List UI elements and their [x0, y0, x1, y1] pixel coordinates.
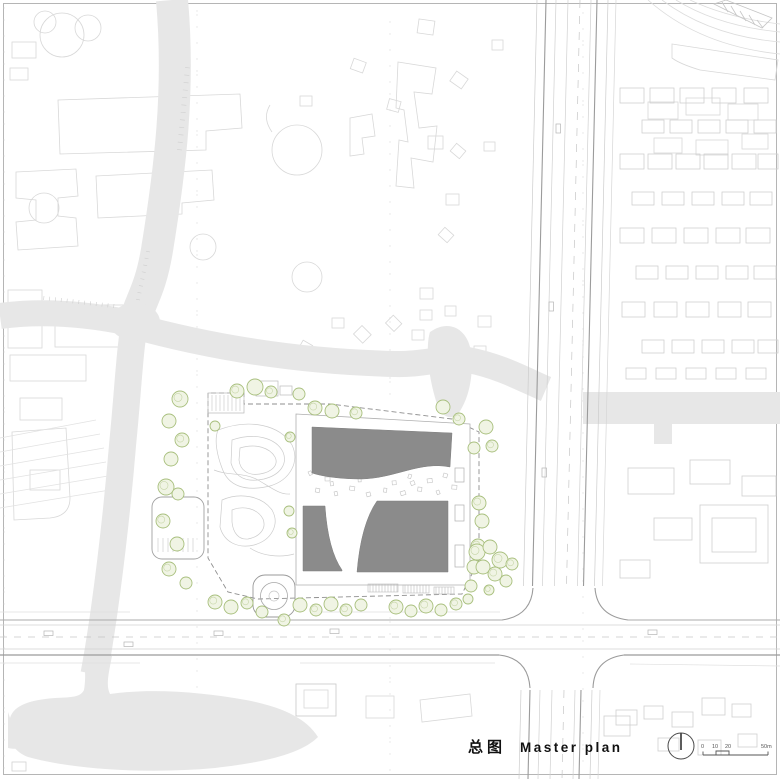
tree-icon [170, 537, 184, 551]
ground-dot [389, 153, 390, 154]
ground-dot [196, 26, 197, 27]
roof-southeast-block [357, 501, 448, 572]
drawing-title-chinese: 总图 [468, 739, 506, 756]
ground-dot [196, 282, 197, 283]
ground-dot [3, 679, 4, 680]
ground-dot [582, 688, 583, 689]
ground-dot [3, 531, 4, 532]
ground-dot [389, 49, 390, 50]
ground-dot [196, 206, 197, 207]
ground-dot [196, 566, 197, 567]
scale-label-0: 0 [701, 744, 704, 750]
ground-dot [3, 767, 4, 768]
ground-dot [582, 268, 583, 269]
ground-dot [3, 483, 4, 484]
ground-dot [582, 252, 583, 253]
ground-dot [389, 617, 390, 618]
ground-dot [582, 716, 583, 717]
ground-dot [196, 670, 197, 671]
ground-dot [582, 520, 583, 521]
ground-dot [389, 305, 390, 306]
ground-dot [582, 176, 583, 177]
drawing-title: 总图Master plan [468, 736, 623, 757]
ground-dot [196, 194, 197, 195]
tree-icon [500, 575, 512, 587]
ground-dot [389, 377, 390, 378]
ground-dot [582, 44, 583, 45]
ground-dot [582, 672, 583, 673]
ground-dot [3, 755, 4, 756]
ground-dot [196, 610, 197, 611]
tree-icon [180, 577, 192, 589]
ground-dot [196, 522, 197, 523]
ground-dot [196, 238, 197, 239]
ground-dot [389, 33, 390, 34]
ground-dot [196, 462, 197, 463]
tree-icon [468, 442, 480, 454]
ground-dot [389, 273, 390, 274]
ground-dot [389, 93, 390, 94]
ground-dot [3, 603, 4, 604]
ground-dot [582, 132, 583, 133]
ground-dot [582, 164, 583, 165]
ground-dot [582, 536, 583, 537]
ground-dot [196, 582, 197, 583]
ground-dot [196, 86, 197, 87]
ground-dot [3, 455, 4, 456]
ground-dot [582, 732, 583, 733]
ground-dot [389, 753, 390, 754]
ground-dot [389, 81, 390, 82]
tree-icon [405, 605, 417, 617]
ground-dot [196, 326, 197, 327]
tree-icon [435, 604, 447, 616]
ground-dot [389, 169, 390, 170]
ground-dot [582, 12, 583, 13]
ground-dot [389, 349, 390, 350]
ground-dot [196, 130, 197, 131]
ground-dot [389, 681, 390, 682]
tree-icon [324, 597, 338, 611]
ground-dot [582, 284, 583, 285]
ground-dot [389, 769, 390, 770]
ground-dot [389, 381, 390, 382]
ground-dot [389, 665, 390, 666]
ground-dot [3, 139, 4, 140]
ground-dot [389, 677, 390, 678]
ground-dot [196, 250, 197, 251]
ground-dot [3, 51, 4, 52]
ground-dot [196, 598, 197, 599]
ground-dot [3, 543, 4, 544]
ground-dot [196, 102, 197, 103]
ground-dot [582, 72, 583, 73]
ground-dot [196, 550, 197, 551]
tree-icon [355, 599, 367, 611]
ground-dot [196, 626, 197, 627]
ground-dot [196, 298, 197, 299]
tree-icon [256, 606, 268, 618]
ground-dot [3, 723, 4, 724]
ground-dot [389, 21, 390, 22]
ground-dot [3, 695, 4, 696]
ground-dot [3, 215, 4, 216]
tree-icon [172, 488, 184, 500]
tree-icon [436, 400, 450, 414]
ground-dot [196, 162, 197, 163]
ground-dot [582, 236, 583, 237]
ground-dot [3, 111, 4, 112]
ground-dot [196, 538, 197, 539]
ground-dot [3, 515, 4, 516]
ground-dot [389, 321, 390, 322]
ground-dot [196, 42, 197, 43]
ground-dot [196, 430, 197, 431]
tree-icon [224, 600, 238, 614]
ground-dot [196, 374, 197, 375]
ground-dot [196, 686, 197, 687]
ground-dot [196, 134, 197, 135]
ground-dot [196, 254, 197, 255]
ground-dot [582, 56, 583, 57]
ground-dot [582, 492, 583, 493]
ground-dot [196, 386, 197, 387]
ground-dot [389, 185, 390, 186]
ground-dot [389, 741, 390, 742]
ground-dot [3, 79, 4, 80]
ground-dot [196, 314, 197, 315]
ground-dot [3, 291, 4, 292]
ground-dot [196, 118, 197, 119]
ground-dot [3, 123, 4, 124]
ground-dot [582, 116, 583, 117]
ground-dot [582, 640, 583, 641]
ground-dot [3, 559, 4, 560]
ground-dot [196, 146, 197, 147]
ground-dot [196, 358, 197, 359]
ground-dot [196, 490, 197, 491]
ground-dot [196, 14, 197, 15]
ground-dot [3, 527, 4, 528]
ground-dot [389, 213, 390, 214]
ground-dot [3, 231, 4, 232]
ground-dot [3, 575, 4, 576]
ground-dot [389, 725, 390, 726]
ground-dot [3, 471, 4, 472]
ground-dot [196, 446, 197, 447]
ground-dot [196, 402, 197, 403]
ground-dot [3, 395, 4, 396]
ground-dot [582, 104, 583, 105]
ground-dot [196, 178, 197, 179]
ground-dot [582, 280, 583, 281]
ground-dot [3, 63, 4, 64]
ground-dot [582, 40, 583, 41]
ground-dot [582, 448, 583, 449]
ground-dot [3, 379, 4, 380]
ground-dot [389, 649, 390, 650]
ground-dot [196, 642, 197, 643]
ground-dot [3, 347, 4, 348]
tree-icon [293, 598, 307, 612]
ground-dot [389, 393, 390, 394]
ground-dot [3, 499, 4, 500]
ground-dot [3, 95, 4, 96]
tree-icon [164, 452, 178, 466]
ground-dot [582, 760, 583, 761]
ground-dot [196, 58, 197, 59]
tree-icon [325, 404, 339, 418]
ground-dot [196, 310, 197, 311]
ground-dot [582, 596, 583, 597]
ground-dot [196, 70, 197, 71]
ground-dot [196, 370, 197, 371]
ground-dot [196, 222, 197, 223]
ground-dot [389, 633, 390, 634]
ground-dot [3, 335, 4, 336]
ground-dot [582, 700, 583, 701]
drawing-title-english: Master plan [520, 740, 623, 755]
ground-dot [582, 88, 583, 89]
ground-dot [3, 155, 4, 156]
ground-dot [582, 460, 583, 461]
ground-dot [582, 192, 583, 193]
ground-dot [389, 261, 390, 262]
ground-dot [582, 296, 583, 297]
ground-dot [582, 208, 583, 209]
ground-dot [389, 621, 390, 622]
tree-icon [479, 420, 493, 434]
ground-dot [3, 663, 4, 664]
scale-label-10: 10 [712, 744, 718, 750]
ground-dot [3, 199, 4, 200]
ground-dot [582, 28, 583, 29]
ground-dot [3, 363, 4, 364]
ground-dot [582, 432, 583, 433]
ground-dot [3, 591, 4, 592]
master-plan-sheet: 0 10 20 50m 总图Master plan [0, 0, 780, 779]
ground-dot [3, 423, 4, 424]
ground-dot [3, 647, 4, 648]
ground-dot [582, 628, 583, 629]
ground-dot [3, 7, 4, 8]
ground-dot [3, 635, 4, 636]
ground-dot [3, 711, 4, 712]
ground-dot [582, 612, 583, 613]
ground-dot [3, 651, 4, 652]
ground-dot [196, 190, 197, 191]
ground-dot [3, 411, 4, 412]
ground-dot [582, 388, 583, 389]
ground-dot [3, 259, 4, 260]
ground-dot [196, 74, 197, 75]
master-plan-drawing: 0 10 20 50m [0, 0, 780, 779]
ground-dot [3, 439, 4, 440]
tree-icon [475, 514, 489, 528]
ground-dot [3, 275, 4, 276]
ground-dot [196, 10, 197, 11]
tree-icon [247, 379, 263, 395]
ground-dot [582, 508, 583, 509]
ground-dot [582, 160, 583, 161]
ground-dot [582, 100, 583, 101]
tree-icon [465, 580, 477, 592]
ground-dot [3, 171, 4, 172]
ground-dot [389, 201, 390, 202]
tree-icon [293, 388, 305, 400]
ground-dot [582, 224, 583, 225]
ground-dot [3, 467, 4, 468]
tree-icon [210, 421, 220, 431]
tree-icon [284, 506, 294, 516]
ground-dot [582, 220, 583, 221]
ground-dot [389, 737, 390, 738]
ground-dot [3, 707, 4, 708]
ground-dot [389, 333, 390, 334]
ground-dot [389, 709, 390, 710]
ground-dot [3, 351, 4, 352]
ground-dot [389, 693, 390, 694]
ground-dot [582, 552, 583, 553]
ground-dot [196, 658, 197, 659]
ground-dot [582, 656, 583, 657]
ground-dot [3, 243, 4, 244]
tree-icon [483, 540, 497, 554]
ground-dot [196, 506, 197, 507]
ground-dot [389, 65, 390, 66]
ground-dot [3, 407, 4, 408]
ground-dot [196, 266, 197, 267]
ground-dot [3, 183, 4, 184]
ground-dot [3, 587, 4, 588]
ground-dot [196, 478, 197, 479]
ground-dot [389, 141, 390, 142]
ground-dot [582, 148, 583, 149]
ground-dot [3, 35, 4, 36]
ground-dot [389, 245, 390, 246]
ground-dot [3, 19, 4, 20]
scale-label-50m: 50m [761, 744, 772, 750]
ground-dot [389, 125, 390, 126]
ground-dot [3, 739, 4, 740]
scale-label-20: 20 [725, 744, 731, 750]
ground-dot [389, 289, 390, 290]
ground-dot [389, 229, 390, 230]
tree-icon [463, 594, 473, 604]
ground-dot [582, 476, 583, 477]
tree-icon [162, 414, 176, 428]
ground-dot [196, 418, 197, 419]
